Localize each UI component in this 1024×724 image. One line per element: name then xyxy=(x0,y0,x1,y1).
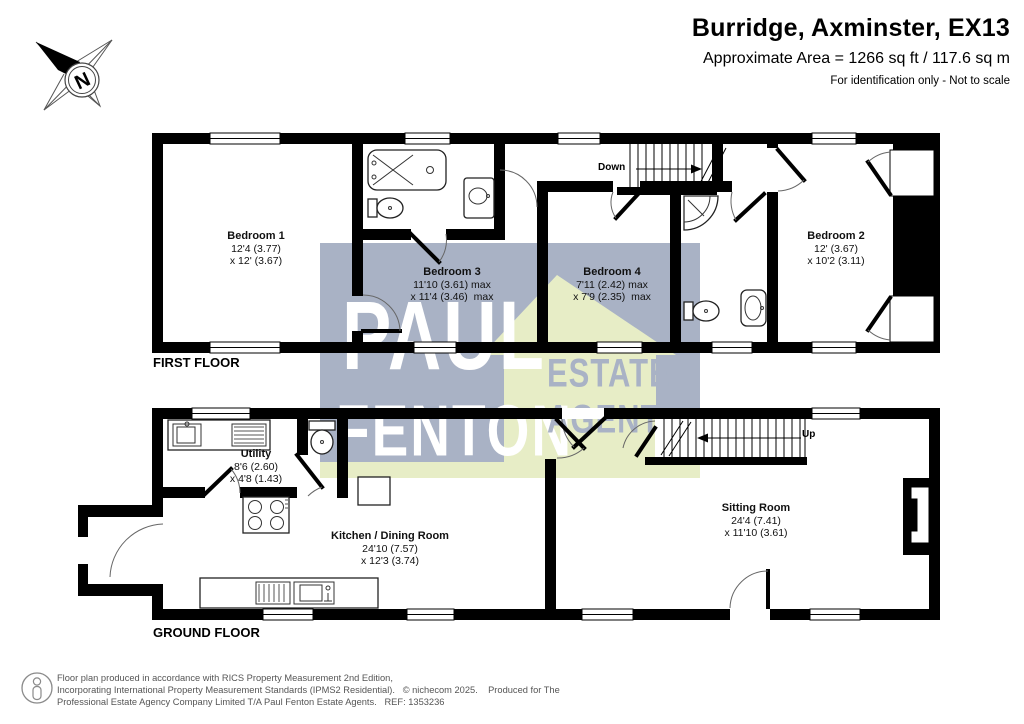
bathroom-basin xyxy=(464,178,494,218)
bedroom2-name: Bedroom 2 xyxy=(807,230,864,243)
utility-name: Utility xyxy=(230,448,282,461)
identification-note: For identification only - Not to scale xyxy=(692,75,1010,87)
header: Burridge, Axminster, EX13 Approximate Ar… xyxy=(692,14,1010,87)
bedroom4-name: Bedroom 4 xyxy=(573,266,651,279)
kitchen-larder-unit xyxy=(358,477,390,505)
sitting-room-name: Sitting Room xyxy=(722,502,790,515)
bedroom1-label: Bedroom 1 12'4 (3.77) x 12' (3.67) xyxy=(227,230,284,268)
floorplan-page: PAUL FENTON ESTATE AGENTS xyxy=(0,0,1024,724)
bedroom4-label: Bedroom 4 7'11 (2.42) max x 7'9 (2.35) m… xyxy=(573,266,651,304)
sitting-room-dim2: x 11'10 (3.61) xyxy=(722,527,790,540)
ensuite-basin xyxy=(741,290,766,326)
kitchen-dining-label: Kitchen / Dining Room 24'10 (7.57) x 12'… xyxy=(331,530,449,568)
bedroom2-label: Bedroom 2 12' (3.67) x 10'2 (3.11) xyxy=(807,230,864,268)
kitchen-counter-sink xyxy=(200,578,378,608)
footer-line3: Professional Estate Agency Company Limit… xyxy=(57,696,560,708)
property-title: Burridge, Axminster, EX13 xyxy=(692,14,1010,43)
footer-line1: Floor plan produced in accordance with R… xyxy=(57,672,560,684)
ensuite-fixtures xyxy=(684,196,766,326)
sitting-room-label: Sitting Room 24'4 (7.41) x 11'10 (3.61) xyxy=(722,502,790,540)
bathroom-toilet xyxy=(368,198,403,218)
ground-floor-stairs xyxy=(623,419,805,457)
footer-line2: Incorporating International Property Mea… xyxy=(57,684,560,696)
ground-floor-title: GROUND FLOOR xyxy=(153,625,260,640)
stairs-down-label: Down xyxy=(598,162,625,173)
bedroom1-dim1: 12'4 (3.77) xyxy=(227,243,284,256)
ensuite-toilet xyxy=(684,301,719,321)
bathroom-fixtures xyxy=(368,150,494,218)
bedroom4-dim1: 7'11 (2.42) max xyxy=(573,279,651,292)
kitchen-hob xyxy=(243,497,289,533)
sitting-room-dim1: 24'4 (7.41) xyxy=(722,515,790,528)
bedroom2-dim1: 12' (3.67) xyxy=(807,243,864,256)
bedroom2-dim2: x 10'2 (3.11) xyxy=(807,255,864,268)
bedroom3-name: Bedroom 3 xyxy=(411,266,494,279)
bedroom1-name: Bedroom 1 xyxy=(227,230,284,243)
footer-disclaimer: Floor plan produced in accordance with R… xyxy=(57,672,560,709)
kitchen-dining-name: Kitchen / Dining Room xyxy=(331,530,449,543)
shower-enclosure xyxy=(684,196,718,230)
first-floor-title: FIRST FLOOR xyxy=(153,355,240,370)
approximate-area: Approximate Area = 1266 sq ft / 117.6 sq… xyxy=(692,50,1010,68)
utility-dim1: 8'6 (2.60) xyxy=(230,461,282,474)
stairs-up-label: Up xyxy=(802,429,815,440)
kitchen-dining-dim2: x 12'3 (3.74) xyxy=(331,555,449,568)
bedroom3-dim1: 11'10 (3.61) max xyxy=(411,279,494,292)
bedroom4-dim2: x 7'9 (2.35) max xyxy=(573,291,651,304)
utility-sink-unit xyxy=(168,420,270,450)
compass-north-icon: N xyxy=(30,32,130,124)
utility-label: Utility 8'6 (2.60) x 4'8 (1.43) xyxy=(230,448,282,486)
bedroom3-dim2: x 11'4 (3.46) max xyxy=(411,291,494,304)
bedroom3-label: Bedroom 3 11'10 (3.61) max x 11'4 (3.46)… xyxy=(411,266,494,304)
nichecom-person-icon xyxy=(20,670,54,706)
wc-toilet xyxy=(309,421,335,454)
kitchen-dining-dim1: 24'10 (7.57) xyxy=(331,543,449,556)
bedroom1-dim2: x 12' (3.67) xyxy=(227,255,284,268)
bath-tub xyxy=(368,150,446,190)
utility-dim2: x 4'8 (1.43) xyxy=(230,473,282,486)
